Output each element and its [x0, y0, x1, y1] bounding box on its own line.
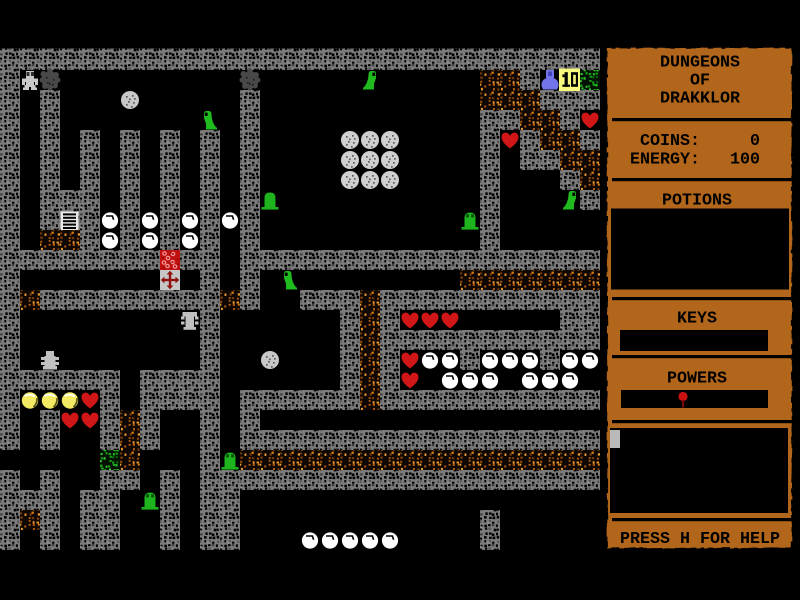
svg-text:KEYS: KEYS [677, 310, 717, 329]
svg-text:PRESS H FOR HELP: PRESS H FOR HELP [620, 530, 780, 549]
svg-text:DUNGEONS: DUNGEONS [660, 54, 740, 73]
svg-text:100: 100 [730, 151, 760, 170]
svg-text:POTIONS: POTIONS [662, 192, 732, 211]
svg-text:COINS:: COINS: [640, 132, 700, 151]
svg-text:POWERS: POWERS [667, 370, 727, 389]
svg-text:ENERGY:: ENERGY: [630, 151, 700, 170]
svg-text:DRAKKLOR: DRAKKLOR [660, 90, 741, 109]
svg-text:OF: OF [690, 72, 710, 91]
svg-text:0: 0 [750, 132, 760, 151]
